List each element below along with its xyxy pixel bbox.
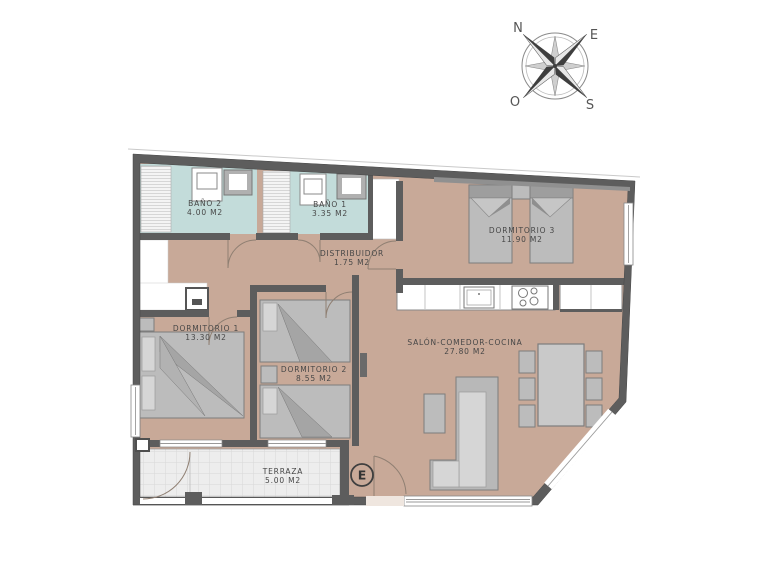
window-salon-bottom	[404, 496, 532, 506]
entry-wall-stub	[332, 495, 354, 505]
room-label-terraza: TERRAZA	[262, 467, 304, 476]
compass-label-south: S	[586, 98, 594, 113]
compass-rose: N E O S	[510, 21, 598, 113]
compass-label-west: O	[510, 95, 520, 110]
room-area-distribuidor: 1.75 M2	[334, 258, 370, 267]
dining-table-icon	[519, 344, 602, 427]
room-area-bano1: 3.35 M2	[312, 209, 348, 218]
tv-stand-icon	[424, 394, 445, 433]
compass-label-north: N	[513, 21, 523, 36]
entrance-opening	[366, 496, 404, 506]
room-label-dormitorio3: DORMITORIO 3	[489, 226, 555, 235]
entrance-label: E	[358, 468, 367, 483]
window-dorm2-terrace	[268, 440, 326, 447]
room-label-distribuidor: DISTRIBUIDOR	[320, 249, 384, 258]
room-area-terraza: 5.00 M2	[265, 476, 301, 485]
entrance-marker: E	[351, 464, 373, 486]
room-area-dormitorio3: 11.90 M2	[501, 235, 543, 244]
tv-icon	[360, 353, 367, 377]
bed-icon-dorm2-upper	[260, 300, 350, 362]
shaft-white	[371, 179, 399, 239]
room-label-salon: SALÓN-COMEDOR-COCINA	[407, 338, 522, 347]
room-label-dormitorio2: DORMITORIO 2	[281, 365, 347, 374]
room-label-dormitorio1: DORMITORIO 1	[173, 324, 239, 333]
cooktop-icon	[512, 286, 548, 309]
room-area-bano2: 4.00 M2	[187, 208, 223, 217]
room-label-bano2: BAÑO 2	[188, 199, 222, 208]
louver-shaft-left	[141, 166, 171, 232]
floor-plan-page: N E O S	[0, 0, 768, 576]
louver-shaft-middle	[263, 171, 290, 233]
corner-box	[136, 439, 149, 451]
room-area-salon: 27.80 M2	[444, 347, 486, 356]
nightstand-icon	[261, 366, 277, 383]
room-terraza-floor	[137, 449, 340, 498]
terrace-pillar	[185, 492, 202, 505]
window-dorm1-left	[131, 385, 140, 437]
window-dorm3-right	[624, 203, 633, 265]
compass-label-east: E	[590, 28, 598, 43]
bed-icon-dorm3-left	[469, 185, 512, 263]
floor-plan-svg: N E O S	[0, 0, 768, 576]
kitchen-counter-icon	[397, 283, 622, 312]
window-dorm1-terrace	[160, 440, 222, 447]
room-label-bano1: BAÑO 1	[313, 200, 347, 209]
bed-icon-dorm3-right	[530, 185, 573, 263]
bed-icon-dorm2-lower	[260, 385, 350, 438]
terrace-railing	[133, 498, 349, 505]
room-area-dormitorio2: 8.55 M2	[296, 374, 332, 383]
room-area-dormitorio1: 13.30 M2	[185, 333, 227, 342]
